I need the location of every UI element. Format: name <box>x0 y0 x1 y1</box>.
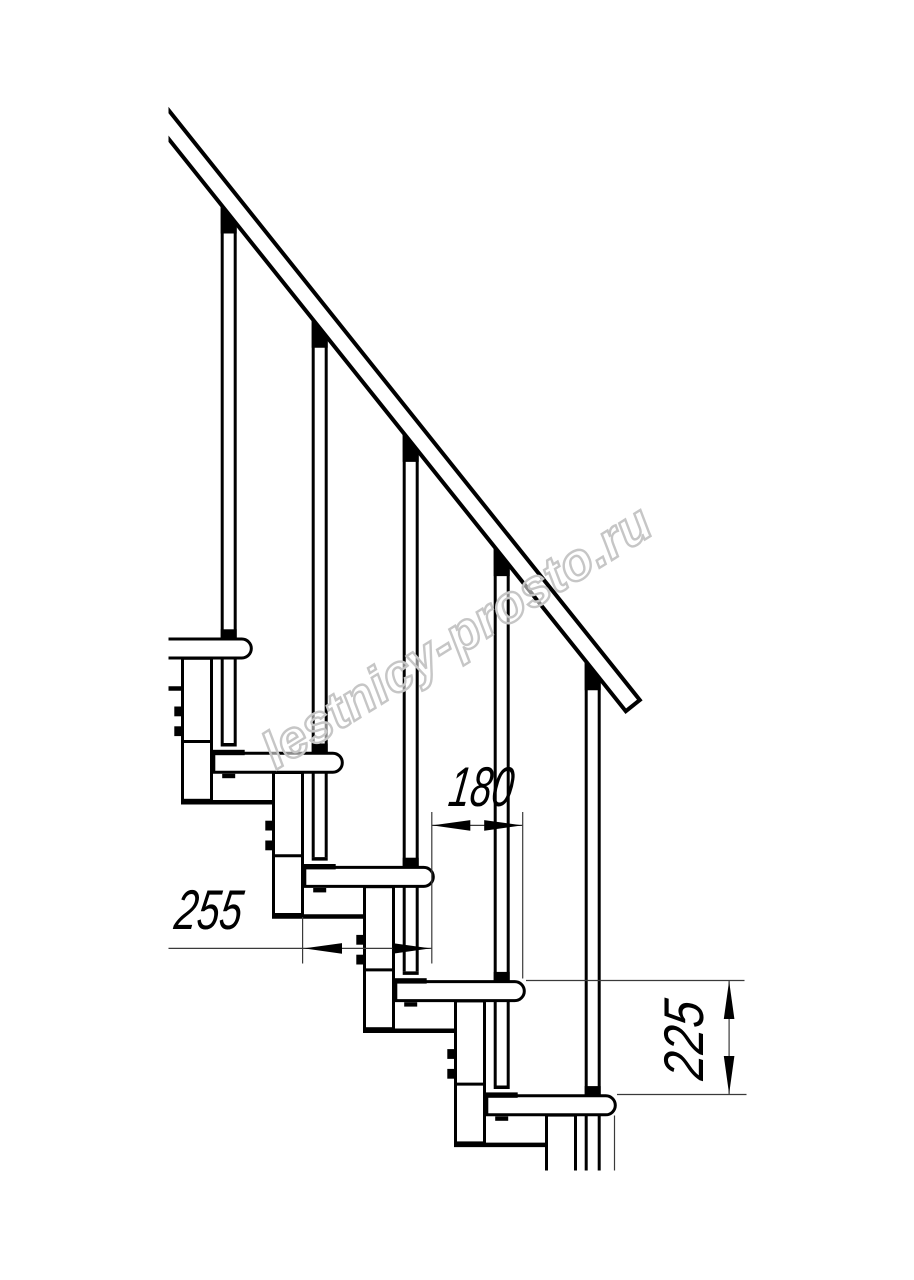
svg-text:255: 255 <box>171 878 248 941</box>
svg-text:225: 225 <box>652 995 715 1083</box>
svg-text:180: 180 <box>445 755 518 818</box>
